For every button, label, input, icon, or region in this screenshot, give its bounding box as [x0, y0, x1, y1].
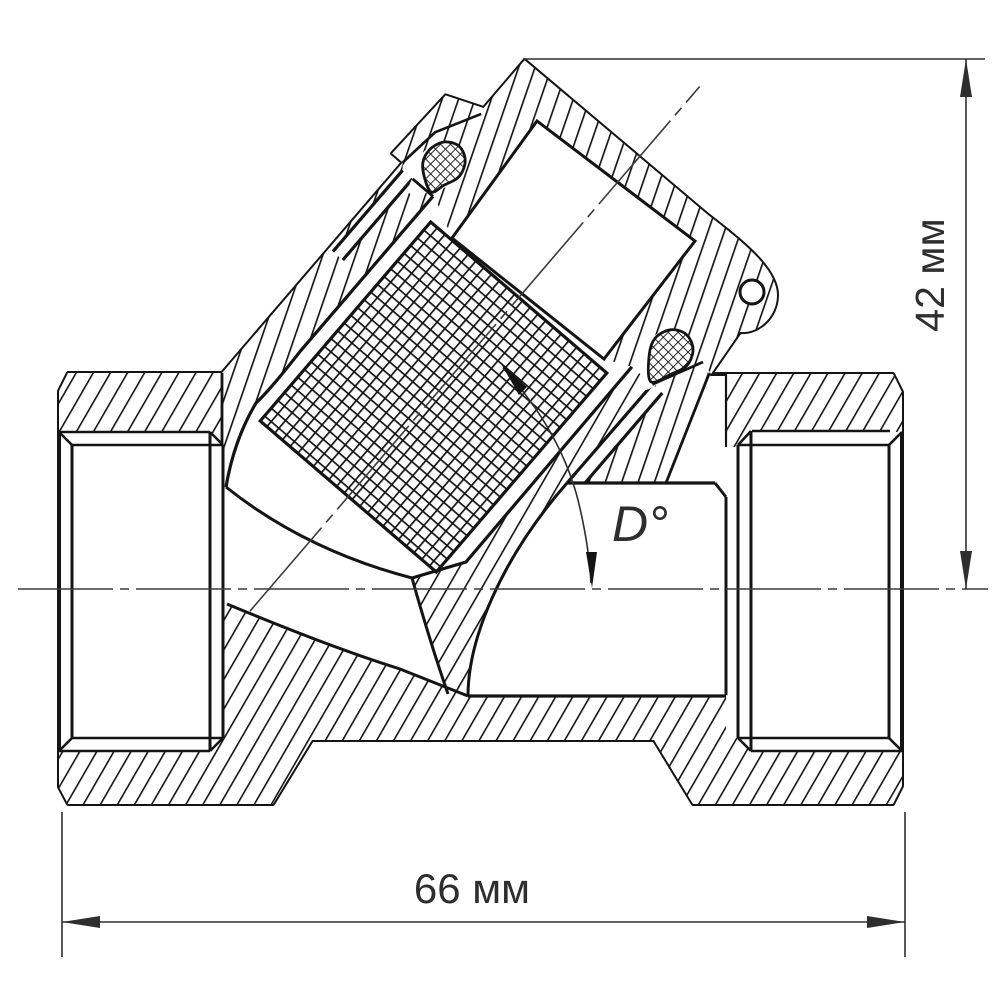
svg-text:66 мм: 66 мм	[414, 865, 530, 912]
svg-text:42 мм: 42 мм	[907, 218, 953, 331]
svg-text:D°: D°	[612, 496, 668, 552]
